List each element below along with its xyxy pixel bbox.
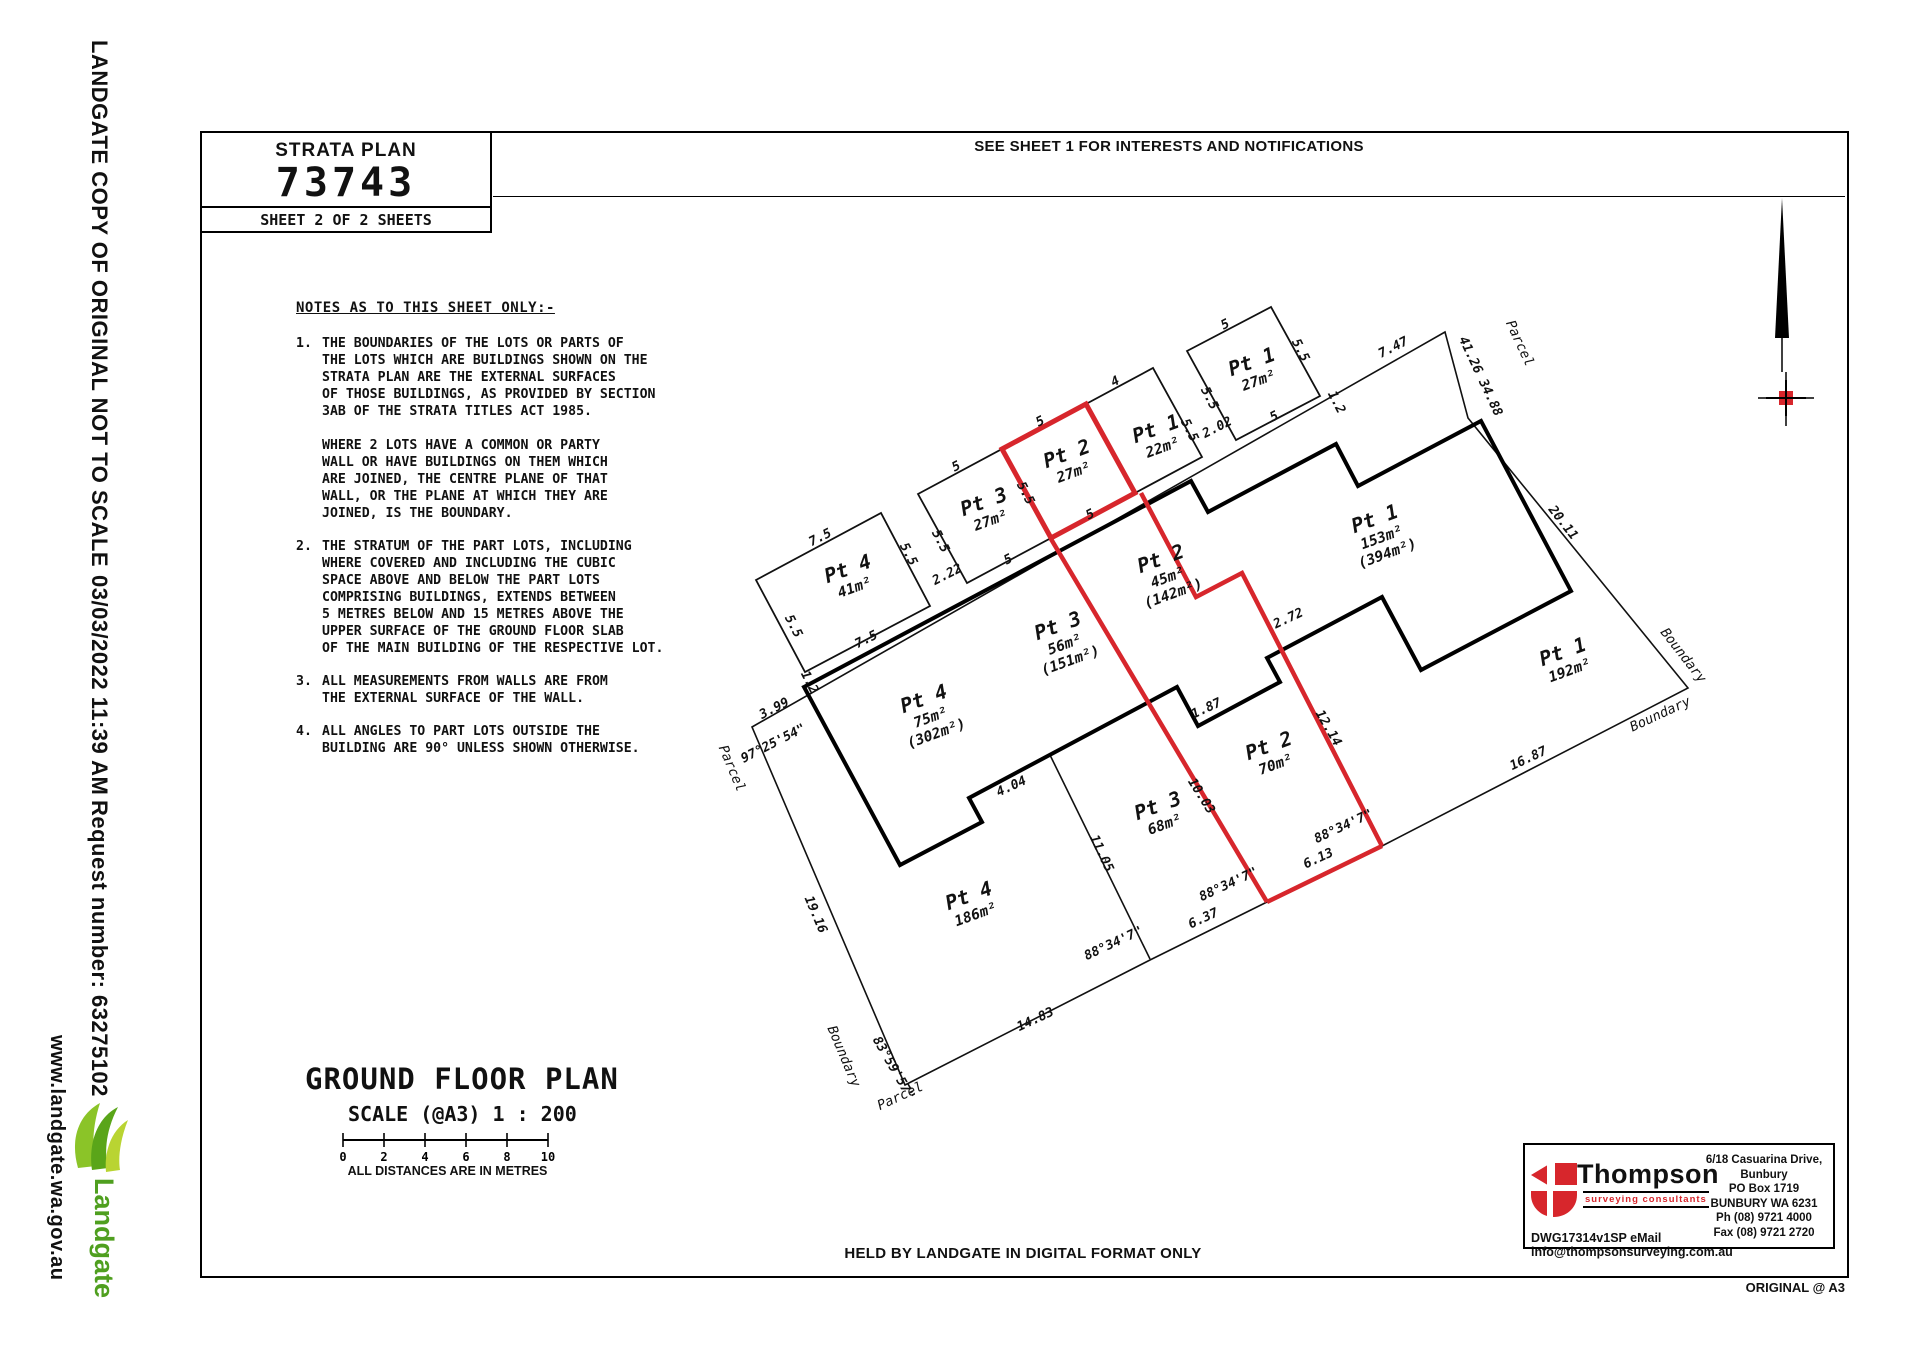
dimension-label: 6.13 [1301,845,1336,872]
dimension-label: 11.05 [1086,833,1116,875]
north-arrow [1758,198,1814,426]
dimension-label: 1.2 [1324,389,1348,417]
thompson-logo-icon [1529,1157,1579,1219]
dimension-label: 10.03 [1184,776,1218,817]
dimension-label: 20.11 [1544,502,1581,543]
landgate-logo: Landgate [75,1103,128,1298]
original-format-note: ORIGINAL @ A3 [1705,1280,1845,1295]
dimension-label: 5 [1219,316,1233,333]
dimension-label: 5.5 [1288,337,1312,365]
dimension-label: 5 [950,458,964,475]
dimension-label: 16.87 [1508,744,1550,774]
surveyor-box: Thompson surveying consultants 6/18 Casu… [1523,1143,1835,1249]
dimension-label: 2.02 [1199,414,1235,442]
dimension-label: 1.87 [1189,695,1224,722]
landgate-logo-text: Landgate [89,1178,119,1298]
drawing-scale: SCALE (@A3) 1 : 200 [348,1102,577,1126]
svg-text:10: 10 [541,1150,555,1164]
svg-text:0: 0 [339,1150,346,1164]
surveyor-address: 6/18 Casuarina Drive,BunburyPO Box 1719B… [1697,1153,1831,1240]
boundary-label: Parcel [1502,318,1537,369]
boundary-label: Boundary [824,1023,864,1090]
dimension-label: 5.5 [896,541,920,569]
dimension-label: 2.22 [929,561,965,589]
dimension-label: 14.83 [1015,1005,1057,1035]
svg-text:6: 6 [462,1150,469,1164]
distances-note: ALL DISTANCES ARE IN METRES [340,1164,555,1178]
boundary-label: Boundary [1657,625,1710,687]
dimension-label: 7.47 [1376,334,1411,362]
svg-text:2: 2 [380,1150,387,1164]
dimension-label: 12.14 [1312,708,1345,750]
dimension-label: 3.99 [756,695,792,723]
lot-label: Pt 127m² [1225,342,1284,397]
dimension-label: 5 [1002,551,1016,568]
dimension-label: 4 [1109,373,1123,390]
svg-text:8: 8 [503,1150,510,1164]
building-outline [804,421,1571,865]
lot-label: Pt 475m²(302m²) [891,677,968,752]
lot-label: Pt 356m²(151m²) [1025,604,1102,679]
dimension-label: 41.26 34.88 [1455,334,1505,419]
dimension-label: 1.2 [797,669,821,697]
lot-label: Pt 1192m² [1536,632,1595,687]
lot-label: Pt 227m² [1040,434,1099,489]
lot-label: Pt 270m² [1242,726,1301,781]
dimension-label: 97°25'54" [739,721,809,766]
drawing-title: GROUND FLOOR PLAN [305,1062,619,1096]
dimension-label: 2.72 [1270,605,1306,632]
drawing-reference: DWG17314v1SP eMail info@thompsonsurveyin… [1531,1231,1833,1259]
held-by-notice: HELD BY LANDGATE IN DIGITAL FORMAT ONLY [493,1245,1553,1262]
scale-bar: 0246810 [339,1133,555,1164]
lot-label: Pt 327m² [957,482,1016,537]
lot-label: Pt 245m²(142m²) [1128,537,1205,612]
lot-label: Pt 4186m² [942,876,1001,931]
surveyor-tagline: surveying consultants [1583,1191,1709,1208]
lot-label: Pt 368m² [1131,786,1190,841]
lot-label: Pt 441m² [821,549,880,604]
dimension-label: 88°34'7" [1082,924,1145,964]
dimension-label: 88°34'7" [1312,807,1375,847]
dimension-label: 5.5 [781,613,805,641]
svg-text:4: 4 [421,1150,428,1164]
lot-label: Pt 1153m²(394m²) [1342,497,1419,572]
dimension-label: 88°34'7" [1197,865,1260,905]
